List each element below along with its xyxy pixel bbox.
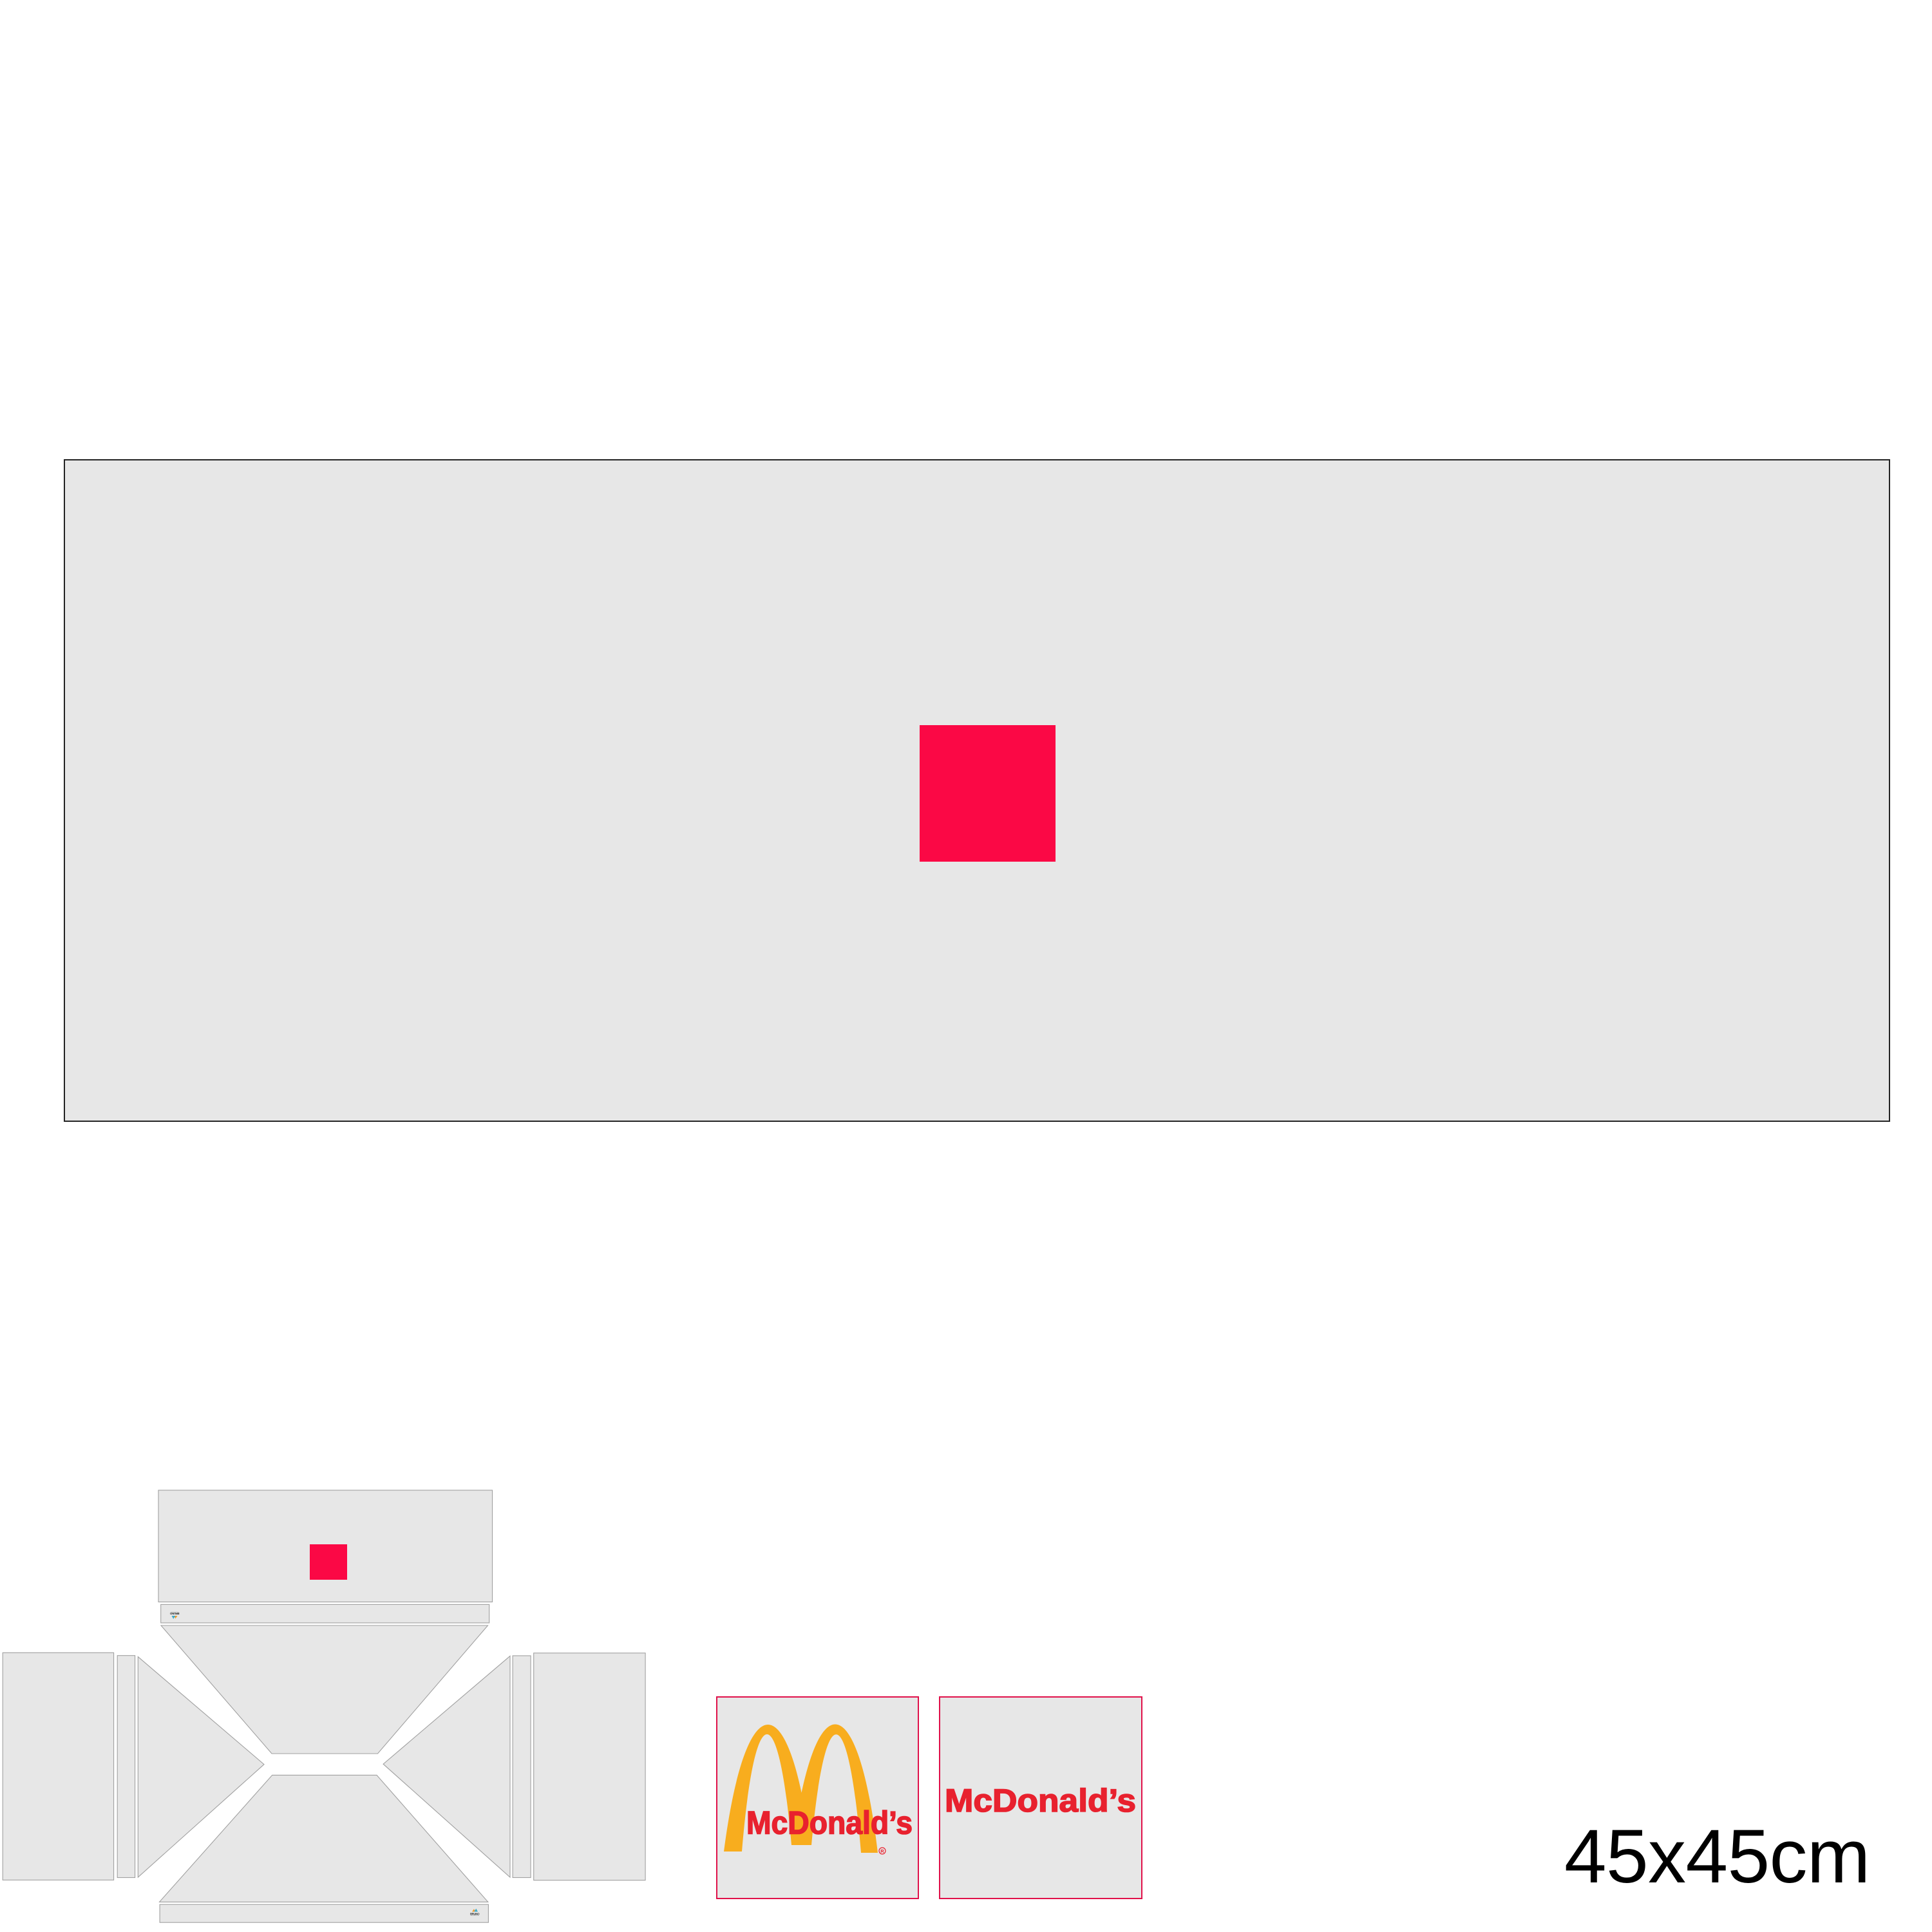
svg-text:BRUNO: BRUNO xyxy=(169,1612,179,1615)
svg-text:McDonald’s: McDonald’s xyxy=(746,1805,913,1841)
svg-text:McDonald’s: McDonald’s xyxy=(945,1783,1136,1819)
svg-text:R: R xyxy=(880,1848,884,1854)
svg-text:BRUNO: BRUNO xyxy=(470,1912,480,1915)
